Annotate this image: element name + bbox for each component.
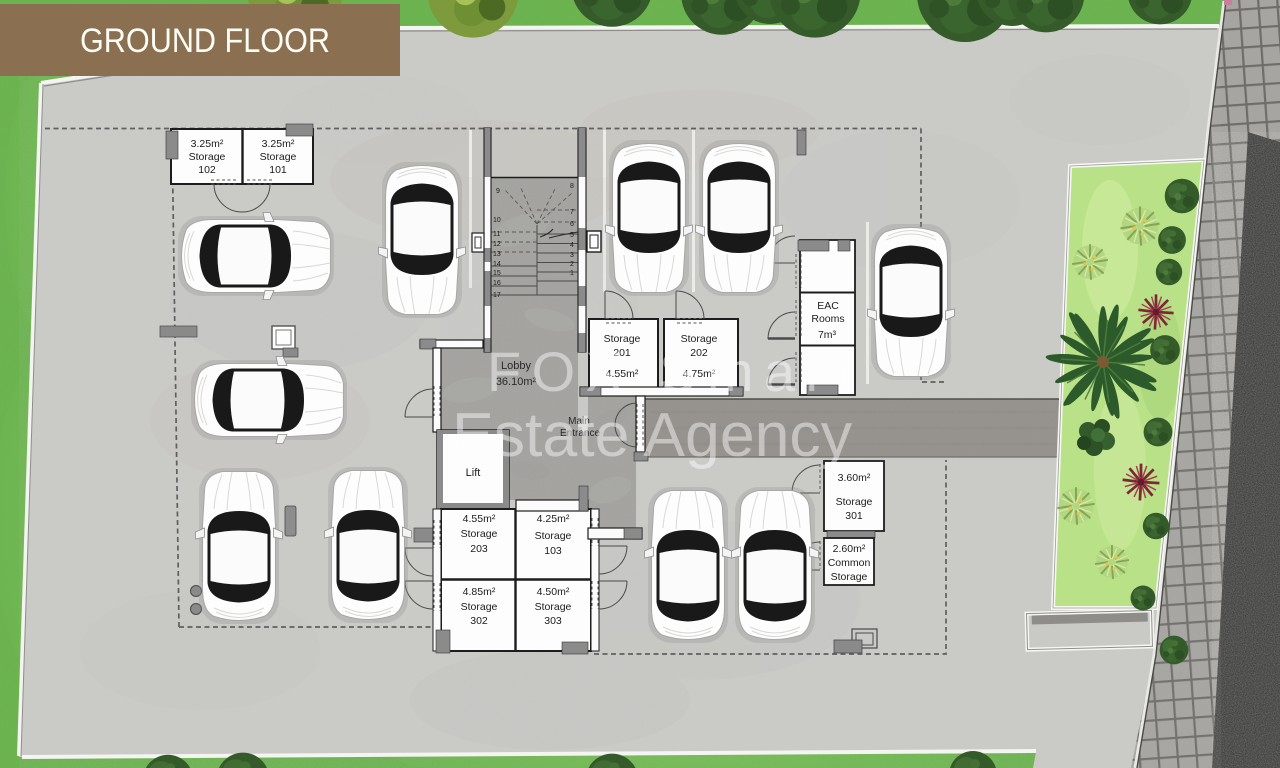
svg-text:Storage: Storage [535, 601, 572, 613]
svg-text:10: 10 [493, 217, 501, 224]
svg-text:4.50m²: 4.50m² [537, 586, 570, 598]
svg-text:GROUND FLOOR: GROUND FLOOR [80, 22, 330, 60]
svg-text:3.60m²: 3.60m² [838, 472, 871, 484]
svg-text:3: 3 [570, 252, 574, 259]
svg-text:303: 303 [544, 615, 562, 627]
svg-text:301: 301 [845, 510, 863, 522]
svg-text:103: 103 [544, 545, 562, 557]
svg-text:EAC: EAC [817, 300, 839, 312]
svg-text:17: 17 [493, 292, 501, 299]
svg-text:5: 5 [570, 232, 574, 239]
svg-text:4.85m²: 4.85m² [463, 586, 496, 598]
svg-text:8: 8 [570, 183, 574, 190]
svg-text:Estate Agency: Estate Agency [452, 401, 852, 470]
svg-text:Storage: Storage [461, 601, 498, 613]
svg-text:Storage: Storage [535, 530, 572, 542]
svg-text:2.60m²: 2.60m² [833, 543, 866, 555]
svg-text:16: 16 [493, 280, 501, 287]
svg-text:4: 4 [570, 242, 574, 249]
svg-text:Rooms: Rooms [811, 313, 844, 325]
svg-text:203: 203 [470, 543, 488, 555]
svg-text:7: 7 [570, 209, 574, 216]
svg-text:11: 11 [493, 231, 500, 238]
svg-text:Storage: Storage [831, 571, 868, 583]
svg-text:4.55m²: 4.55m² [463, 513, 496, 525]
svg-text:3.25m²: 3.25m² [262, 138, 295, 150]
svg-text:Storage: Storage [836, 496, 873, 508]
svg-text:1: 1 [570, 270, 574, 277]
svg-text:Storage: Storage [189, 151, 226, 163]
svg-text:12: 12 [493, 241, 501, 248]
svg-text:4.25m²: 4.25m² [537, 513, 570, 525]
svg-text:15: 15 [493, 270, 501, 277]
svg-text:101: 101 [269, 164, 287, 176]
svg-text:14: 14 [493, 261, 501, 268]
svg-text:6: 6 [570, 221, 574, 228]
svg-text:13: 13 [493, 251, 501, 258]
svg-text:2: 2 [570, 261, 574, 268]
svg-text:302: 302 [470, 615, 488, 627]
svg-text:3.25m²: 3.25m² [191, 138, 224, 150]
svg-text:Storage: Storage [461, 528, 498, 540]
svg-text:9: 9 [496, 188, 500, 195]
svg-text:Storage: Storage [260, 151, 297, 163]
svg-text:Common: Common [828, 557, 871, 569]
svg-text:102: 102 [198, 164, 216, 176]
